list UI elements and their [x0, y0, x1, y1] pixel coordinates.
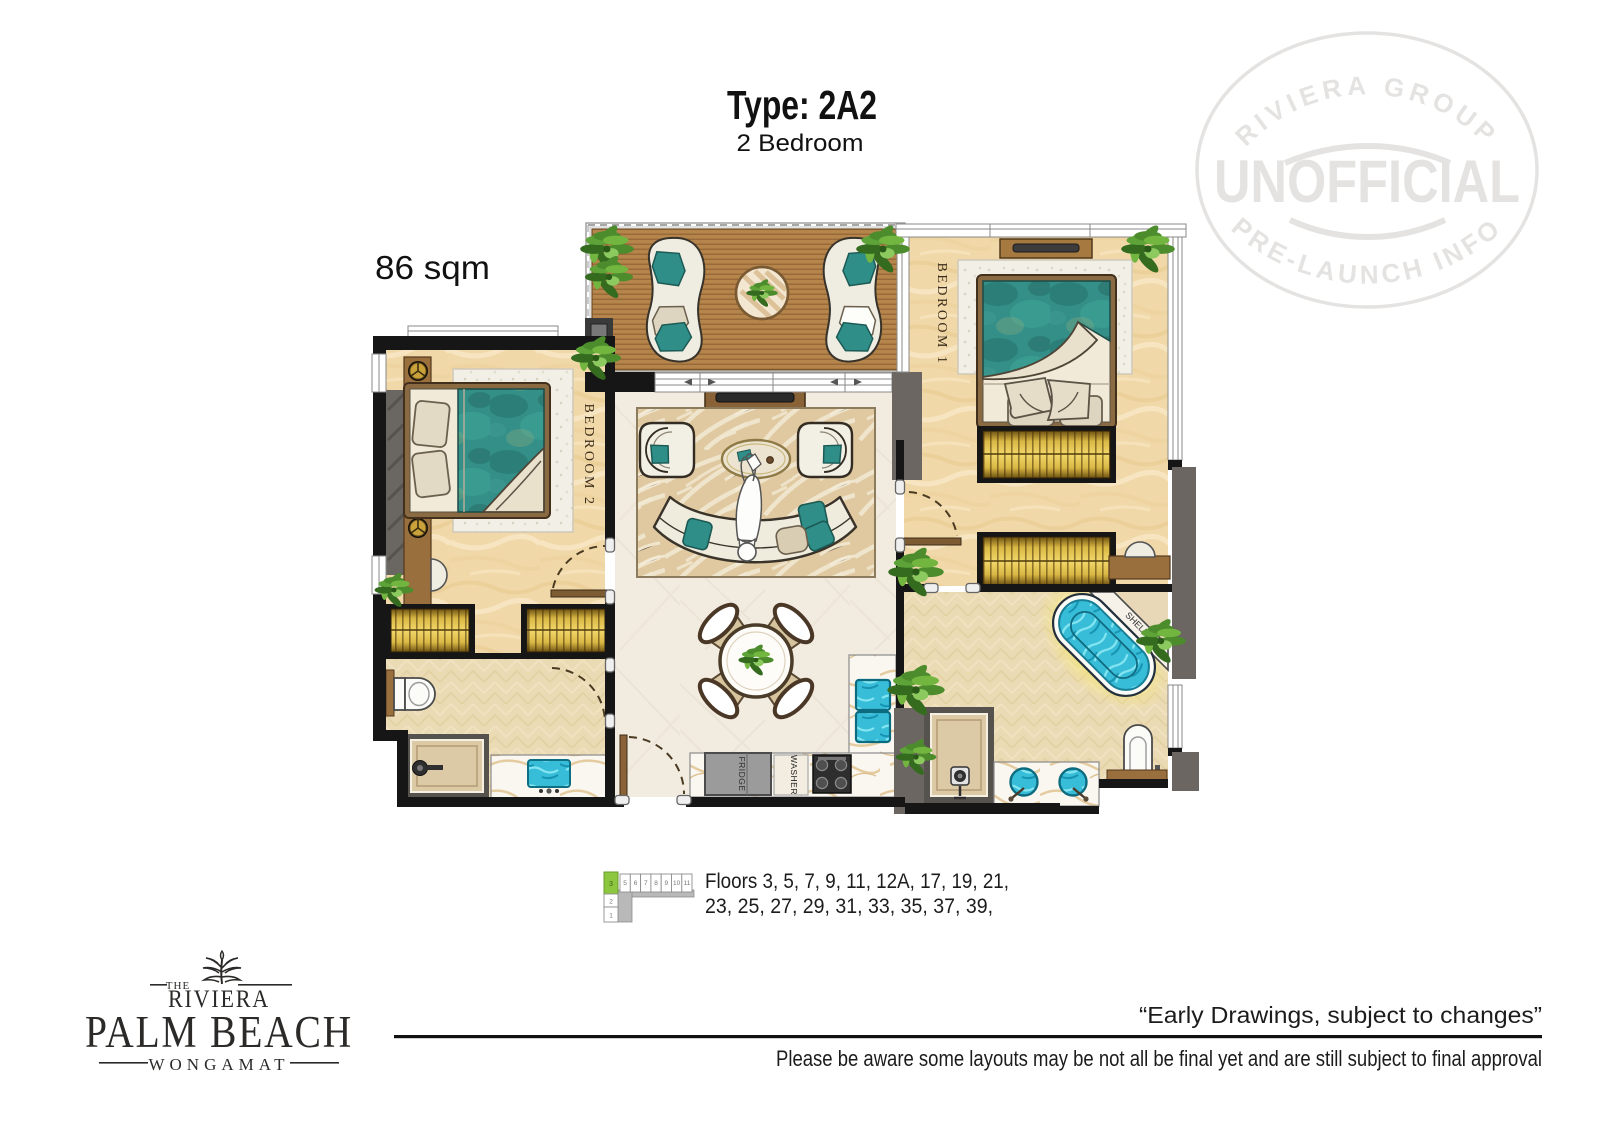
svg-text:11: 11	[684, 880, 691, 887]
svg-text:5: 5	[623, 880, 627, 887]
svg-text:“Early Drawings, subject to ch: “Early Drawings, subject to changes”	[1139, 1002, 1542, 1028]
svg-text:3: 3	[609, 881, 613, 888]
svg-text:23, 25, 27, 29, 31, 33, 35, 37: 23, 25, 27, 29, 31, 33, 35, 37, 39,	[705, 894, 993, 918]
svg-text:7: 7	[644, 880, 648, 887]
svg-text:6: 6	[634, 880, 638, 887]
svg-text:10: 10	[673, 880, 681, 887]
svg-text:PALM BEACH: PALM BEACH	[85, 1007, 353, 1057]
svg-text:8: 8	[654, 880, 658, 887]
svg-text:WASHER: WASHER	[789, 755, 799, 795]
svg-text:BEDROOM 1: BEDROOM 1	[934, 262, 949, 365]
svg-text:2: 2	[609, 899, 613, 906]
svg-text:UNOFFICIAL: UNOFFICIAL	[1214, 148, 1520, 215]
svg-text:WONGAMAT: WONGAMAT	[148, 1055, 289, 1074]
svg-text:BEDROOM 2: BEDROOM 2	[581, 403, 596, 506]
svg-text:Floors 3, 5, 7, 9, 11, 12A, 17: Floors 3, 5, 7, 9, 11, 12A, 17, 19, 21,	[705, 869, 1009, 893]
svg-text:2 Bedroom: 2 Bedroom	[737, 130, 864, 157]
svg-text:Please be aware some layouts m: Please be aware some layouts may be not …	[776, 1046, 1542, 1071]
svg-text:1: 1	[609, 913, 613, 920]
svg-text:9: 9	[664, 880, 668, 887]
svg-text:FRIDGE: FRIDGE	[737, 756, 747, 791]
svg-text:Type: 2A2: Type: 2A2	[727, 82, 877, 128]
svg-text:86 sqm: 86 sqm	[375, 249, 490, 286]
